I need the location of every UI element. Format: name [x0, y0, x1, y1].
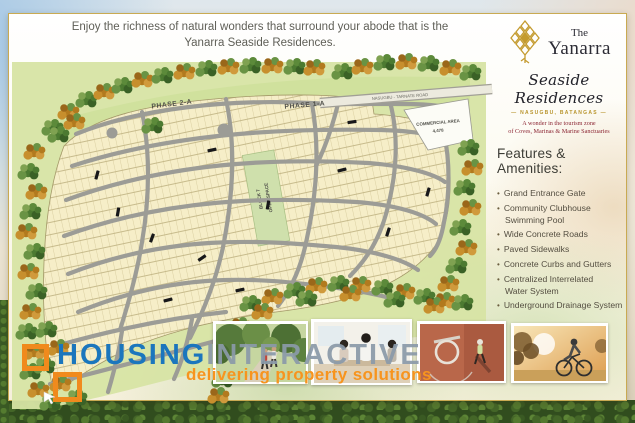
dash-right: —	[601, 110, 607, 116]
bullet-icon: •	[497, 204, 500, 214]
logo-tagline: A wonder in the tourism zone of Coves, M…	[493, 120, 625, 136]
cursor-arrow-icon	[43, 391, 57, 410]
photo-sunset-cyclist	[511, 323, 608, 383]
cul-de-sac	[107, 128, 118, 139]
location-text: NASUGBU, BATANGAS	[520, 110, 598, 116]
amenity-label: Paved Sidewalks	[504, 245, 569, 255]
amenity-item: •Community Clubhouse	[497, 204, 629, 214]
amenity-item: •Wide Concrete Roads	[497, 230, 629, 240]
logo-name: Yanarra	[548, 39, 611, 59]
bullet-icon: •	[497, 245, 500, 255]
amenity-label: Community Clubhouse	[504, 204, 591, 214]
dash-left: —	[511, 110, 517, 116]
amenity-label-continued: Water System	[505, 286, 629, 296]
bullet-icon: •	[497, 260, 500, 270]
header-line1: Enjoy the richness of natural wonders th…	[40, 20, 480, 36]
yanarra-logo: The Yanarra Seaside Residences — NASUGBU…	[493, 18, 625, 136]
brand-square-icon	[22, 344, 49, 371]
diamond-lattice-icon	[507, 18, 543, 69]
amenity-label-continued: Swimming Pool	[505, 215, 629, 225]
bullet-icon: •	[497, 230, 500, 240]
amenity-label: Grand Entrance Gate	[504, 189, 586, 199]
logo-tagline-line1: A wonder in the tourism zone	[493, 120, 625, 128]
amenity-item: •Underground Drainage System	[497, 301, 629, 311]
amenity-label: Concrete Curbs and Gutters	[504, 260, 611, 270]
cul-de-sac	[218, 124, 231, 137]
commercial-area-label-line2: 4,478	[432, 127, 444, 133]
amenity-item: •Paved Sidewalks	[497, 245, 629, 255]
logo-script-line: Seaside Residences	[493, 71, 625, 107]
amenity-label: Underground Drainage System	[504, 301, 622, 311]
amenity-item: •Concrete Curbs and Gutters	[497, 260, 629, 270]
bullet-icon: •	[497, 189, 500, 199]
watermark-housing: HOUSING	[57, 339, 206, 371]
amenities-heading: Features & Amenities:	[497, 146, 629, 176]
bullet-icon: •	[497, 275, 500, 285]
bullet-icon: •	[497, 301, 500, 311]
header-line2: Yanarra Seaside Residences.	[40, 36, 480, 52]
logo-location: — NASUGBU, BATANGAS —	[493, 110, 625, 116]
brand-square-icon	[53, 372, 82, 402]
amenity-item: •Grand Entrance Gate	[497, 189, 629, 199]
amenities-panel: Features & Amenities: •Grand Entrance Ga…	[497, 146, 629, 316]
header-tagline: Enjoy the richness of natural wonders th…	[40, 20, 480, 52]
logo-tagline-line2: of Coves, Marinas & Marine Sanctuaries	[493, 128, 625, 136]
amenities-list: •Grand Entrance Gate•Community Clubhouse…	[497, 189, 629, 311]
amenity-label: Wide Concrete Roads	[504, 230, 588, 240]
watermark-tagline: delivering property solutions	[186, 365, 432, 385]
amenity-label: Centralized Interrelated	[504, 275, 593, 285]
amenity-item: •Centralized Interrelated	[497, 275, 629, 285]
